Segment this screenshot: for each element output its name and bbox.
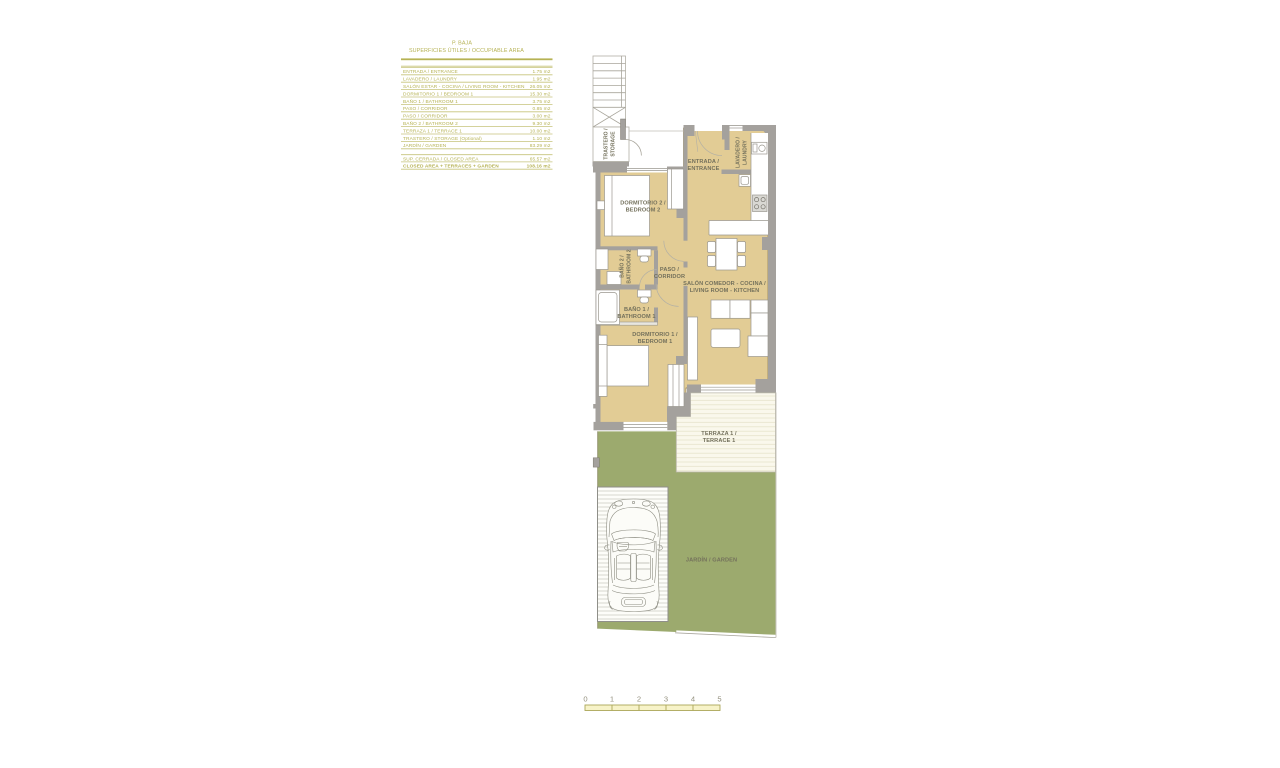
svg-text:TRASTERO / STORAGE (Optional): TRASTERO / STORAGE (Optional): [403, 136, 482, 142]
svg-text:BAÑO 2 / BATHROOM 2: BAÑO 2 / BATHROOM 2: [403, 120, 458, 127]
svg-text:1.75 m2: 1.75 m2: [532, 69, 550, 75]
svg-text:SUP. CERRADA / CLOSED AREA: SUP. CERRADA / CLOSED AREA: [403, 156, 479, 162]
svg-text:BATHROOM 1: BATHROOM 1: [617, 314, 655, 320]
svg-text:DORMITORIO 2 /: DORMITORIO 2 /: [620, 201, 666, 207]
svg-text:65.57 m2: 65.57 m2: [530, 156, 551, 162]
svg-text:BAÑO 1 / BATHROOM 1: BAÑO 1 / BATHROOM 1: [403, 98, 458, 105]
svg-text:LAVADERO /: LAVADERO /: [736, 136, 742, 168]
svg-text:CLOSED AREA + TERRACES + GARDE: CLOSED AREA + TERRACES + GARDEN: [403, 164, 499, 170]
svg-text:26.05 m2: 26.05 m2: [530, 84, 551, 90]
svg-text:BAÑO 2 /: BAÑO 2 /: [619, 255, 626, 278]
svg-text:LAVADERO / LAUNDRY: LAVADERO / LAUNDRY: [403, 77, 458, 83]
svg-text:P. BAJA: P. BAJA: [452, 41, 472, 47]
svg-text:0.85 m2: 0.85 m2: [532, 106, 550, 112]
svg-text:SALÓN COMEDOR - COCINA /: SALÓN COMEDOR - COCINA /: [683, 279, 766, 287]
svg-text:9.30 m2: 9.30 m2: [532, 121, 550, 127]
svg-text:SALÓN ESTAR - COCINA / LIVING: SALÓN ESTAR - COCINA / LIVING ROOM - KIT…: [403, 83, 525, 90]
svg-text:LAUNDRY: LAUNDRY: [743, 139, 749, 165]
svg-text:1.10 m2: 1.10 m2: [532, 136, 550, 142]
svg-text:4: 4: [691, 695, 695, 704]
svg-text:1.95 m2: 1.95 m2: [532, 77, 550, 83]
svg-text:TRASTERO /: TRASTERO /: [604, 128, 610, 160]
svg-text:CORRIDOR: CORRIDOR: [654, 274, 685, 280]
svg-text:TERRACE 1: TERRACE 1: [703, 438, 736, 444]
svg-text:15.30 m2: 15.30 m2: [530, 91, 551, 97]
svg-text:LIVING ROOM - KITCHEN: LIVING ROOM - KITCHEN: [690, 288, 760, 294]
svg-text:BEDROOM 1: BEDROOM 1: [638, 339, 673, 345]
svg-text:2: 2: [637, 695, 641, 704]
svg-text:SUPERFICIES ÚTILES / OCCUPIABL: SUPERFICIES ÚTILES / OCCUPIABLE AREA: [409, 47, 524, 54]
svg-text:PASO / CORRIDOR: PASO / CORRIDOR: [403, 106, 448, 112]
svg-text:TERRAZA 1 /: TERRAZA 1 /: [701, 431, 737, 437]
svg-text:108.16 m2: 108.16 m2: [527, 164, 551, 170]
svg-text:TERRAZA 1 / TERRACE 1: TERRAZA 1 / TERRACE 1: [403, 128, 462, 134]
svg-text:BEDROOM 2: BEDROOM 2: [626, 208, 661, 214]
svg-text:5: 5: [717, 695, 721, 704]
svg-text:10.00 m2: 10.00 m2: [530, 128, 551, 134]
svg-text:3.00 m2: 3.00 m2: [532, 114, 550, 120]
svg-text:BAÑO 1 /: BAÑO 1 /: [624, 306, 649, 313]
svg-text:DORMITORIO 1 / BEDROOM 1: DORMITORIO 1 / BEDROOM 1: [403, 91, 474, 97]
svg-text:JARDÍN / GARDEN: JARDÍN / GARDEN: [686, 556, 737, 564]
svg-text:0: 0: [583, 695, 587, 704]
svg-text:JARDÍN / GARDEN: JARDÍN / GARDEN: [403, 142, 447, 149]
svg-text:PASO /: PASO /: [660, 267, 679, 273]
svg-text:BATHROOM 2: BATHROOM 2: [627, 249, 633, 283]
svg-text:DORMITORIO 1 /: DORMITORIO 1 /: [632, 332, 678, 338]
svg-text:ENTRADA /: ENTRADA /: [688, 159, 719, 165]
svg-text:PASO / CORRIDOR: PASO / CORRIDOR: [403, 114, 448, 120]
svg-text:STORAGE: STORAGE: [611, 131, 617, 157]
svg-text:ENTRANCE: ENTRANCE: [688, 166, 720, 172]
svg-text:83.29 m2: 83.29 m2: [530, 143, 551, 149]
svg-text:3: 3: [664, 695, 668, 704]
svg-text:3.75 m2: 3.75 m2: [532, 99, 550, 105]
svg-text:1: 1: [610, 695, 614, 704]
svg-text:ENTRADA / ENTRANCE: ENTRADA / ENTRANCE: [403, 69, 458, 75]
